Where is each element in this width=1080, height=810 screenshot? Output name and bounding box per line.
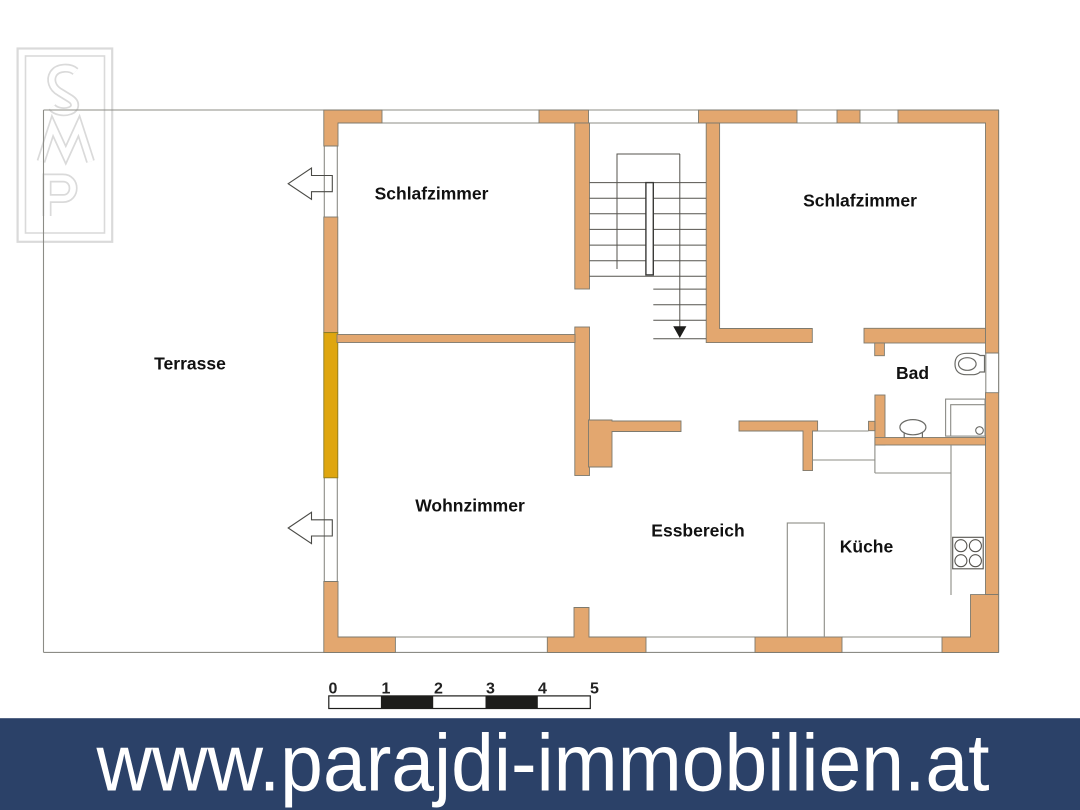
svg-text:Küche: Küche: [840, 537, 894, 557]
svg-text:Bad: Bad: [896, 363, 929, 383]
svg-text:4: 4: [538, 680, 547, 697]
svg-text:Essbereich: Essbereich: [651, 521, 744, 541]
svg-text:3: 3: [486, 680, 495, 697]
svg-text:1: 1: [382, 680, 391, 697]
svg-text:www.parajdi-immobilien.at: www.parajdi-immobilien.at: [96, 719, 990, 809]
svg-text:2: 2: [434, 680, 443, 697]
svg-text:Wohnzimmer: Wohnzimmer: [415, 496, 525, 516]
svg-text:Schlafzimmer: Schlafzimmer: [375, 184, 489, 204]
svg-text:0: 0: [329, 680, 338, 697]
svg-text:Terrasse: Terrasse: [154, 354, 226, 374]
svg-text:Schlafzimmer: Schlafzimmer: [803, 191, 917, 211]
svg-text:5: 5: [590, 680, 599, 697]
